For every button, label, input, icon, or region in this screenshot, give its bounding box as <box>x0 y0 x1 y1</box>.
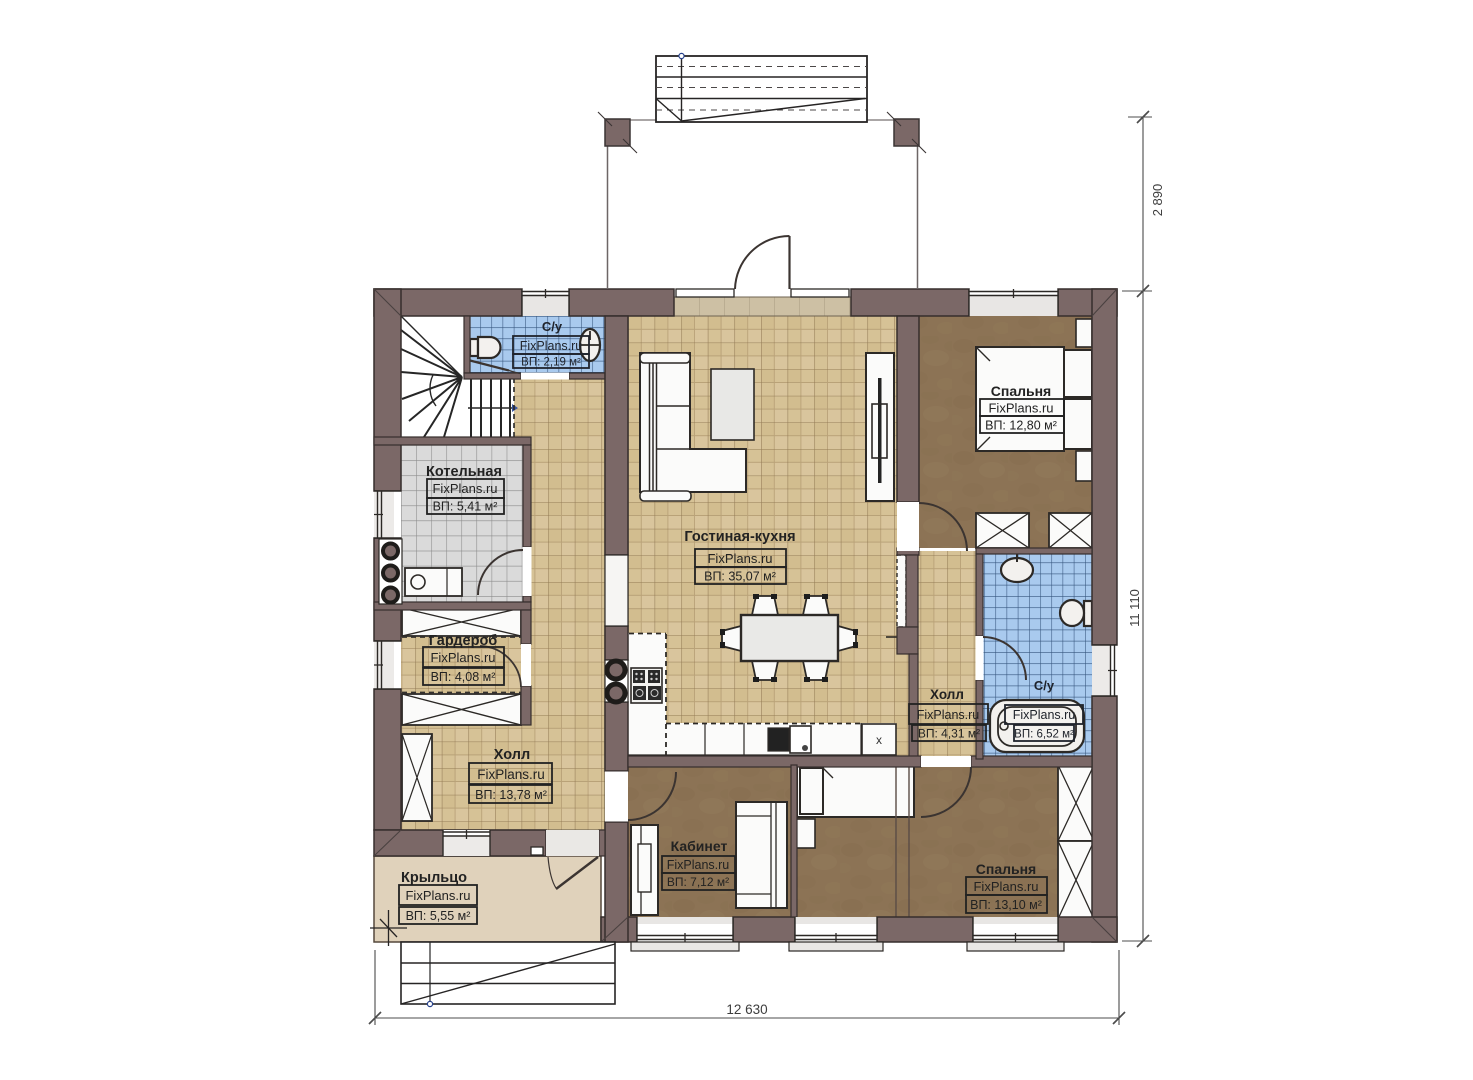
svg-text:ВП: 4,31 м²: ВП: 4,31 м² <box>918 727 980 741</box>
svg-text:Котельная: Котельная <box>426 464 502 480</box>
svg-text:FixPlans.ru: FixPlans.ru <box>405 888 470 903</box>
svg-text:Кабинет: Кабинет <box>671 838 728 854</box>
svg-text:FixPlans.ru: FixPlans.ru <box>667 858 730 872</box>
svg-text:ВП: 2,19 м²: ВП: 2,19 м² <box>521 357 581 369</box>
svg-text:ВП: 6,52 м²: ВП: 6,52 м² <box>1014 729 1074 741</box>
svg-text:FixPlans.ru: FixPlans.ru <box>430 650 495 665</box>
svg-text:ВП: 12,80 м²: ВП: 12,80 м² <box>985 419 1057 433</box>
svg-text:ВП: 7,12 м²: ВП: 7,12 м² <box>667 875 729 889</box>
svg-text:12 630: 12 630 <box>726 1002 767 1017</box>
svg-text:ВП: 4,08 м²: ВП: 4,08 м² <box>431 670 496 684</box>
svg-text:2 890: 2 890 <box>1150 184 1165 217</box>
svg-text:FixPlans.ru: FixPlans.ru <box>520 339 583 353</box>
svg-text:FixPlans.ru: FixPlans.ru <box>477 767 545 782</box>
svg-text:11 110: 11 110 <box>1127 589 1142 627</box>
svg-text:FixPlans.ru: FixPlans.ru <box>973 879 1038 894</box>
svg-text:Спальня: Спальня <box>991 383 1051 399</box>
svg-text:FixPlans.ru: FixPlans.ru <box>432 481 497 496</box>
svg-text:ВП: 5,41 м²: ВП: 5,41 м² <box>433 500 498 514</box>
svg-text:ВП: 13,10 м²: ВП: 13,10 м² <box>970 898 1042 912</box>
svg-text:FixPlans.ru: FixPlans.ru <box>1013 708 1076 722</box>
svg-text:Холл: Холл <box>930 687 964 702</box>
svg-text:Спальня: Спальня <box>976 861 1036 877</box>
svg-text:ВП: 35,07 м²: ВП: 35,07 м² <box>704 570 776 584</box>
svg-text:Гостиная-кухня: Гостиная-кухня <box>684 529 795 545</box>
svg-text:Холл: Холл <box>494 747 530 763</box>
svg-text:FixPlans.ru: FixPlans.ru <box>707 551 772 566</box>
svg-text:С/у: С/у <box>1034 678 1055 693</box>
svg-text:С/у: С/у <box>542 319 563 334</box>
svg-text:ВП: 5,55 м²: ВП: 5,55 м² <box>406 909 471 923</box>
svg-text:Крыльцо: Крыльцо <box>401 870 467 886</box>
svg-text:FixPlans.ru: FixPlans.ru <box>988 401 1053 416</box>
svg-text:х: х <box>876 733 882 747</box>
svg-text:ВП: 13,78 м²: ВП: 13,78 м² <box>475 788 547 802</box>
svg-text:FixPlans.ru: FixPlans.ru <box>917 708 980 722</box>
